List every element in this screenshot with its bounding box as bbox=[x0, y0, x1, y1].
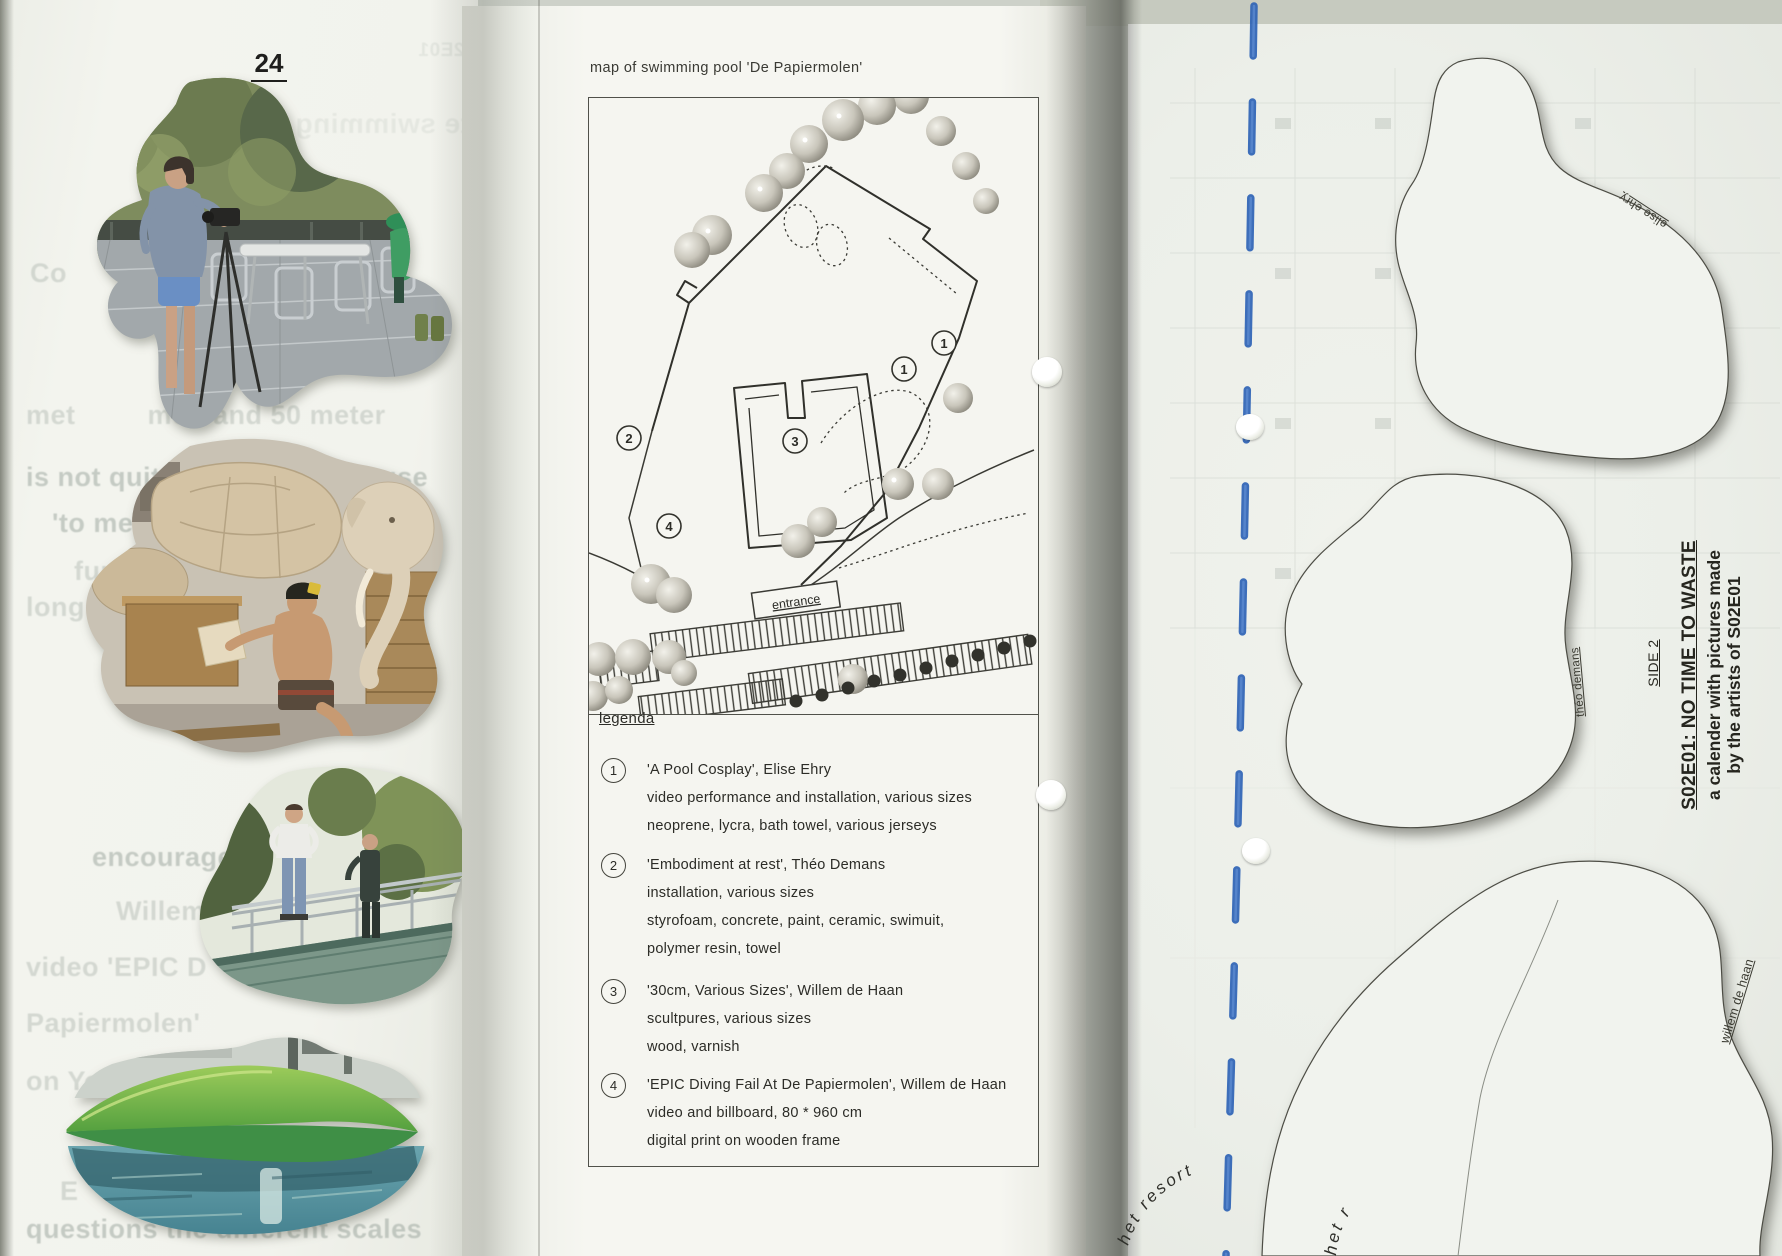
legend-line: wood, varnish bbox=[647, 1033, 1035, 1061]
marker-number: 3 bbox=[791, 434, 798, 449]
punch-hole bbox=[1236, 414, 1264, 440]
map-title: map of swimming pool 'De Papiermolen' bbox=[590, 60, 863, 76]
legend-line: installation, various sizes bbox=[647, 879, 1035, 907]
het-resort-label: het resort bbox=[1114, 1160, 1197, 1247]
svg-text:het r: het r bbox=[1321, 1202, 1355, 1256]
photo-cutout-boat-tarp bbox=[52, 1028, 430, 1256]
legend-title: 'EPIC Diving Fail At De Papiermolen', Wi… bbox=[647, 1071, 1035, 1099]
map-marker: 2 bbox=[617, 426, 641, 450]
binding-thread bbox=[1190, 0, 1310, 1256]
legend-heading: legenda bbox=[599, 710, 655, 727]
map-legend-divider bbox=[589, 714, 1038, 715]
marker-number: 4 bbox=[665, 519, 673, 534]
marker-number: 2 bbox=[625, 431, 632, 446]
map-marker: 1 bbox=[932, 331, 956, 355]
calendar-title: S02E01: NO TIME TO WASTE bbox=[1679, 505, 1707, 845]
template-shape-elise-ehry bbox=[1396, 58, 1729, 459]
svg-text:het resort: het resort bbox=[1114, 1160, 1197, 1247]
legend-line: video and billboard, 80 * 960 cm bbox=[647, 1099, 1035, 1127]
photo-cutout-sculpture-workshop bbox=[70, 432, 460, 762]
scanned-spread: 24 elite swimming S02E01 Co met mo and 5… bbox=[0, 0, 1782, 1256]
punch-hole bbox=[1242, 838, 1270, 864]
legend-title: 'Embodiment at rest', Théo Demans bbox=[647, 851, 1035, 879]
map-marker: 4 bbox=[657, 514, 681, 538]
page-crease bbox=[538, 0, 540, 1256]
legend-number: 2 bbox=[601, 853, 626, 878]
map-marker: 1 bbox=[892, 357, 916, 381]
legend-line: digital print on wooden frame bbox=[647, 1127, 1035, 1155]
punch-hole bbox=[1032, 357, 1062, 387]
scanner-background bbox=[1040, 0, 1782, 26]
side-label: SIDE 2 bbox=[1645, 603, 1675, 723]
left-page: 24 elite swimming S02E01 Co met mo and 5… bbox=[0, 0, 478, 1256]
legend-title: 'A Pool Cosplay', Elise Ehry bbox=[647, 756, 1035, 784]
calendar-subtitle-line2: by the artists of S02E01 bbox=[1724, 510, 1750, 840]
legend-line: styrofoam, concrete, paint, ceramic, swi… bbox=[647, 907, 1035, 935]
map-and-legend-box: entrance 1 1 2 3 4 bbox=[588, 97, 1039, 1167]
legend-line: scultpures, various sizes bbox=[647, 1005, 1035, 1033]
legend-title: '30cm, Various Sizes', Willem de Haan bbox=[647, 977, 1035, 1005]
map-markers: 1 1 2 3 4 bbox=[617, 331, 956, 538]
legend-line: polymer resin, towel bbox=[647, 935, 1035, 963]
punch-hole bbox=[1036, 780, 1066, 810]
legend-line: neoprene, lycra, bath towel, various jer… bbox=[647, 812, 1035, 840]
map-marker: 3 bbox=[783, 429, 807, 453]
legend-line: video performance and installation, vari… bbox=[647, 784, 1035, 812]
template-shape-theo-demans bbox=[1285, 474, 1575, 827]
legend-number: 4 bbox=[601, 1073, 626, 1098]
photo-cutout-camera-woman bbox=[50, 72, 465, 434]
legend-number: 1 bbox=[601, 758, 626, 783]
legend-number: 3 bbox=[601, 979, 626, 1004]
site-plan-map: entrance 1 1 2 3 4 bbox=[589, 98, 1038, 715]
marker-number: 1 bbox=[940, 336, 947, 351]
photo-cutout-diving-platform bbox=[192, 762, 470, 1012]
marker-number: 1 bbox=[900, 362, 907, 377]
het-resort-label-partial: het r bbox=[1321, 1202, 1355, 1256]
